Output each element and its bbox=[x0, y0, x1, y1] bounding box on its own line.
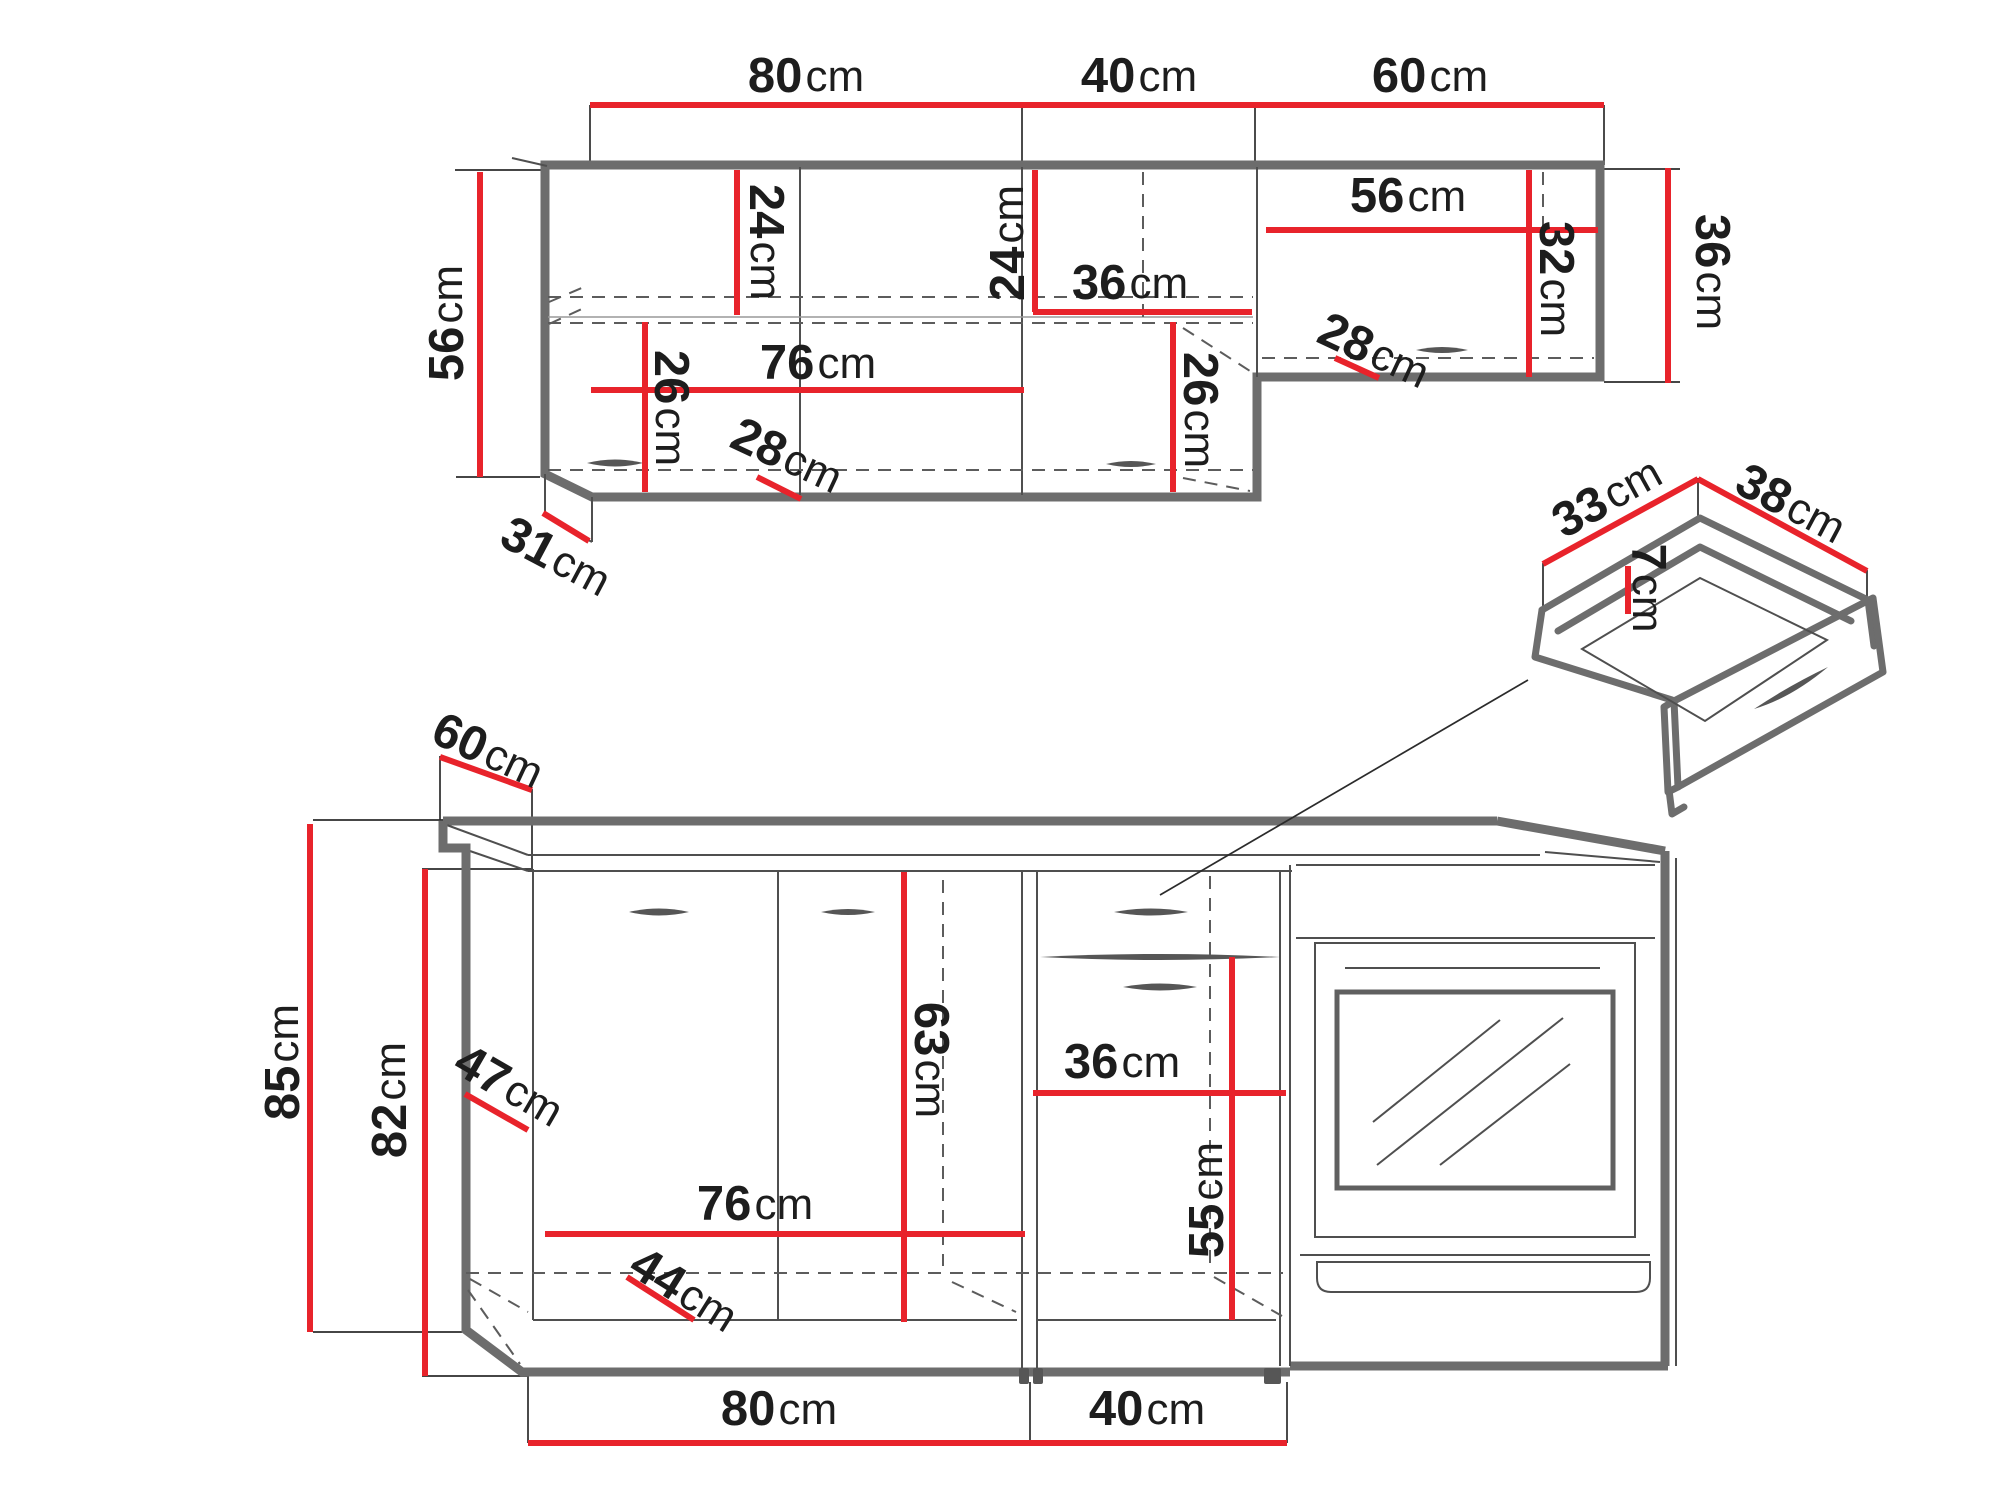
cabinet-foot bbox=[1264, 1368, 1281, 1384]
dim-label-height-36: 36cm bbox=[1685, 214, 1739, 330]
dim-label-55: 55cm bbox=[1180, 1142, 1234, 1258]
countertop-right-slant bbox=[1497, 821, 1665, 851]
corner-depth-dashed-line bbox=[1214, 1277, 1282, 1316]
door-handle bbox=[587, 460, 643, 467]
drawer-handle bbox=[1123, 984, 1197, 991]
cabinet-foot bbox=[1019, 1368, 1029, 1384]
corner-depth-dashed-line bbox=[952, 1282, 1016, 1312]
dim-label-24b: 24cm bbox=[981, 185, 1035, 301]
dim-label-85: 85cm bbox=[256, 1004, 310, 1120]
drawer-gap-line bbox=[1040, 954, 1280, 960]
base-cabinets-view: 60cm 85cm 82cm 47cm 63cm 36cm 55cm 76cm … bbox=[256, 702, 1676, 1443]
dim-label-height-56: 56cm bbox=[420, 265, 474, 381]
diagram-canvas: 80cm 40cm 60cm 36cm 56cm 24cm 24cm 36cm … bbox=[0, 0, 2000, 1500]
upper-dimension-labels: 80cm 40cm 60cm 36cm 56cm 24cm 24cm 36cm … bbox=[420, 49, 1739, 608]
drawer-front-panel bbox=[1674, 598, 1883, 787]
countertop-right-lower-slant bbox=[1545, 852, 1660, 862]
dim-label-36: 36cm bbox=[1064, 1035, 1180, 1089]
base-dim-ticks bbox=[313, 756, 1287, 1443]
drawer-box bbox=[1535, 518, 1883, 814]
dim-label-width-40: 40cm bbox=[1081, 49, 1197, 103]
dim-label-24a: 24cm bbox=[739, 184, 793, 300]
dim-label-width-80: 80cm bbox=[748, 49, 864, 103]
dim-label-60-depth: 60cm bbox=[424, 702, 552, 800]
drawer-interior-floor bbox=[1582, 578, 1827, 721]
door-handle bbox=[821, 909, 875, 915]
diagram-page: 80cm 40cm 60cm 36cm 56cm 24cm 24cm 36cm … bbox=[0, 0, 2000, 1500]
dim-label-63: 63cm bbox=[904, 1002, 958, 1118]
base-dimension-labels: 60cm 85cm 82cm 47cm 63cm 36cm 55cm 76cm … bbox=[256, 702, 1234, 1436]
base-dimension-lines bbox=[310, 757, 1287, 1443]
drawer-callout-line bbox=[1160, 680, 1528, 895]
drawer-rim-inner bbox=[1558, 547, 1851, 631]
drawer-handle bbox=[1114, 909, 1188, 916]
dim-label-width-60: 60cm bbox=[1372, 49, 1488, 103]
dim-label-width-40: 40cm bbox=[1089, 1382, 1205, 1436]
corner-depth-dashed-line bbox=[470, 1279, 528, 1312]
dim-label-36-inner: 36cm bbox=[1072, 256, 1188, 310]
dim-label-76: 76cm bbox=[760, 336, 876, 390]
dim-label-44: 44cm bbox=[620, 1236, 747, 1343]
oven-glass bbox=[1337, 992, 1613, 1188]
corner-depth-dashed-line bbox=[1183, 478, 1250, 491]
glass-reflection-line bbox=[1373, 1020, 1500, 1122]
dim-label-76: 76cm bbox=[697, 1177, 813, 1231]
dim-label-32: 32cm bbox=[1529, 221, 1583, 337]
corner-depth-dashed-line bbox=[549, 287, 584, 302]
glass-reflection-line bbox=[1440, 1064, 1570, 1165]
dim-label-26b: 26cm bbox=[1173, 352, 1227, 468]
upper-cabinets-view: 80cm 40cm 60cm 36cm 56cm 24cm 24cm 36cm … bbox=[420, 49, 1739, 608]
door-handle bbox=[1106, 461, 1156, 467]
countertop-left-slant bbox=[467, 850, 528, 871]
drawer-handle bbox=[1754, 667, 1828, 709]
dim-label-7: 7cm bbox=[1621, 544, 1675, 633]
base-left-and-bottom-edge bbox=[443, 821, 1290, 1372]
door-handle bbox=[629, 909, 689, 916]
corner-depth-dashed-line bbox=[549, 308, 584, 324]
cabinet-foot bbox=[1033, 1368, 1043, 1384]
dim-label-56-inner: 56cm bbox=[1350, 169, 1466, 223]
dim-label-82: 82cm bbox=[363, 1042, 417, 1158]
base-cabinet-body bbox=[443, 821, 1676, 1384]
oven bbox=[1296, 865, 1655, 1292]
dim-label-33: 33cm bbox=[1543, 445, 1671, 549]
oven-door-frame bbox=[1315, 943, 1635, 1237]
oven-bottom-band bbox=[1317, 1262, 1650, 1292]
dim-label-26a: 26cm bbox=[644, 350, 698, 466]
dim-label-28b: 28cm bbox=[1310, 302, 1438, 400]
dim-label-width-80: 80cm bbox=[721, 1382, 837, 1436]
drawer-runner-foot bbox=[1669, 790, 1684, 814]
